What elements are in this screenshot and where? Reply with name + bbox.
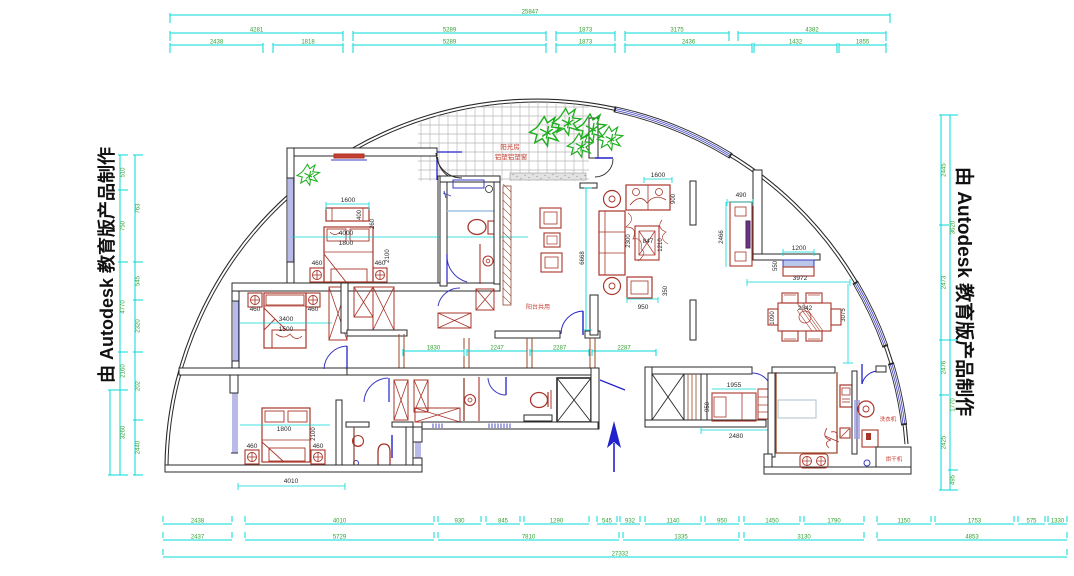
svg-text:2445: 2445	[942, 163, 948, 177]
svg-text:490: 490	[736, 192, 747, 199]
svg-text:4010: 4010	[333, 519, 347, 525]
svg-text:6668: 6668	[580, 251, 586, 265]
svg-text:2440: 2440	[136, 440, 142, 454]
svg-text:930: 930	[454, 519, 465, 525]
svg-text:1800: 1800	[339, 240, 354, 247]
svg-text:2100: 2100	[311, 427, 317, 441]
svg-text:2476: 2476	[942, 360, 948, 374]
svg-text:1855: 1855	[856, 40, 870, 46]
svg-text:1818: 1818	[301, 40, 315, 46]
svg-text:4382: 4382	[805, 28, 819, 34]
svg-text:4010: 4010	[284, 478, 299, 485]
svg-text:260: 260	[370, 218, 376, 229]
svg-text:950: 950	[638, 304, 649, 311]
svg-text:5289: 5289	[443, 28, 457, 34]
svg-text:900: 900	[671, 193, 677, 204]
svg-text:阳光房: 阳光房	[500, 142, 520, 151]
svg-text:460: 460	[247, 443, 258, 450]
svg-text:1955: 1955	[727, 382, 742, 389]
svg-text:545: 545	[136, 275, 142, 286]
svg-text:1140: 1140	[667, 519, 681, 525]
svg-text:750: 750	[121, 220, 127, 231]
svg-text:950: 950	[705, 401, 711, 412]
svg-text:1873: 1873	[579, 28, 593, 34]
svg-text:4770: 4770	[121, 300, 127, 314]
svg-text:932: 932	[625, 519, 636, 525]
svg-text:2042: 2042	[798, 305, 813, 312]
svg-text:763: 763	[136, 203, 142, 214]
svg-text:1335: 1335	[674, 535, 688, 541]
svg-text:1150: 1150	[898, 519, 912, 525]
svg-text:4000: 4000	[339, 230, 354, 237]
svg-text:460: 460	[313, 443, 324, 450]
svg-text:3075: 3075	[841, 308, 847, 322]
svg-text:铝塑铝塑窗: 铝塑铝塑窗	[495, 152, 528, 161]
svg-text:4281: 4281	[250, 28, 264, 34]
svg-text:1210: 1210	[658, 238, 664, 252]
svg-text:1600: 1600	[341, 197, 356, 204]
svg-text:1500: 1500	[279, 326, 294, 333]
svg-text:202: 202	[136, 380, 142, 391]
svg-text:3260: 3260	[121, 425, 127, 439]
svg-text:1090: 1090	[770, 311, 776, 325]
svg-text:1830: 1830	[427, 346, 441, 352]
svg-text:575: 575	[1026, 519, 1037, 525]
svg-text:495: 495	[951, 474, 957, 485]
svg-text:550: 550	[773, 260, 779, 271]
svg-text:2480: 2480	[729, 433, 744, 440]
svg-text:460: 460	[250, 306, 261, 313]
svg-text:2466: 2466	[719, 230, 725, 244]
svg-text:1450: 1450	[765, 519, 779, 525]
svg-text:950: 950	[717, 519, 728, 525]
svg-text:5289: 5289	[443, 40, 457, 46]
svg-text:1600: 1600	[651, 172, 666, 179]
svg-text:3130: 3130	[797, 535, 811, 541]
svg-text:460: 460	[375, 260, 386, 267]
svg-text:1290: 1290	[550, 519, 564, 525]
svg-text:3972: 3972	[793, 275, 808, 282]
svg-text:7810: 7810	[522, 535, 536, 541]
svg-text:460: 460	[308, 306, 319, 313]
svg-text:2160: 2160	[121, 364, 127, 378]
svg-text:2320: 2320	[136, 319, 142, 333]
svg-text:2436: 2436	[682, 40, 696, 46]
svg-text:由 Autodesk 教育版产品制作: 由 Autodesk 教育版产品制作	[96, 147, 117, 383]
svg-text:2437: 2437	[191, 535, 205, 541]
svg-text:545: 545	[602, 519, 613, 525]
svg-text:400: 400	[357, 209, 363, 220]
svg-text:2247: 2247	[490, 346, 504, 352]
svg-text:1330: 1330	[1051, 519, 1065, 525]
svg-text:27332: 27332	[612, 552, 629, 558]
svg-text:2473: 2473	[942, 275, 948, 289]
svg-text:阳台共用: 阳台共用	[526, 303, 550, 311]
svg-text:3175: 3175	[670, 28, 684, 34]
svg-text:2425: 2425	[942, 435, 948, 449]
svg-text:460: 460	[312, 260, 323, 267]
svg-text:5729: 5729	[333, 535, 347, 541]
svg-text:1753: 1753	[968, 519, 982, 525]
svg-text:2287: 2287	[617, 346, 631, 352]
svg-text:2438: 2438	[210, 40, 224, 46]
svg-text:2287: 2287	[553, 346, 567, 352]
svg-text:847: 847	[643, 238, 654, 245]
svg-text:1873: 1873	[579, 40, 593, 46]
svg-text:845: 845	[498, 519, 509, 525]
svg-text:2300: 2300	[626, 234, 632, 248]
svg-text:1432: 1432	[789, 40, 803, 46]
svg-text:1800: 1800	[277, 426, 292, 433]
svg-text:烘干机: 烘干机	[886, 455, 903, 463]
svg-text:25847: 25847	[522, 10, 539, 16]
svg-text:3400: 3400	[279, 316, 294, 323]
svg-text:1200: 1200	[792, 245, 807, 252]
svg-text:350: 350	[663, 285, 669, 296]
svg-text:510: 510	[121, 167, 127, 178]
svg-text:洗衣机: 洗衣机	[880, 415, 897, 423]
svg-text:由 Autodesk 教育版产品制作: 由 Autodesk 教育版产品制作	[953, 167, 976, 416]
svg-text:4853: 4853	[965, 535, 979, 541]
svg-text:1790: 1790	[827, 519, 841, 525]
svg-text:2438: 2438	[191, 519, 205, 525]
svg-text:2100: 2100	[385, 249, 391, 263]
